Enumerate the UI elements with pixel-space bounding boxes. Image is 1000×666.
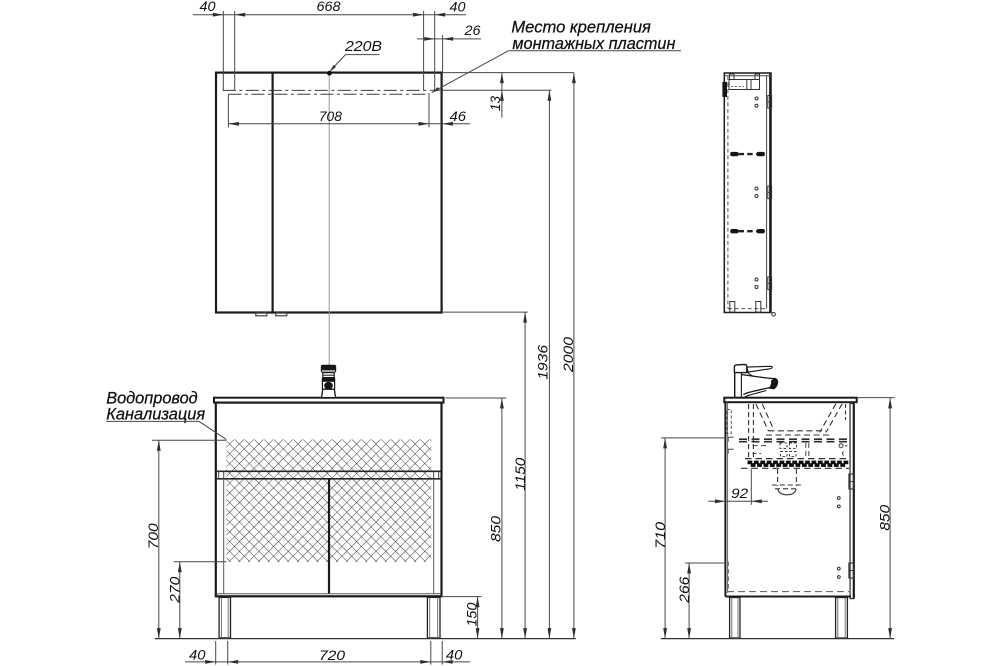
svg-text:266: 266 bbox=[676, 576, 692, 603]
svg-text:708: 708 bbox=[319, 108, 342, 124]
svg-text:710: 710 bbox=[652, 522, 668, 549]
svg-text:668: 668 bbox=[317, 0, 341, 14]
svg-text:13: 13 bbox=[487, 96, 503, 111]
svg-text:26: 26 bbox=[463, 22, 480, 38]
svg-text:1150: 1150 bbox=[512, 457, 528, 490]
svg-text:850: 850 bbox=[487, 516, 503, 542]
svg-text:40: 40 bbox=[446, 647, 463, 663]
svg-text:40: 40 bbox=[189, 646, 206, 662]
svg-text:850: 850 bbox=[876, 505, 892, 531]
svg-text:2000: 2000 bbox=[560, 337, 576, 373]
svg-text:270: 270 bbox=[167, 576, 183, 603]
svg-text:40: 40 bbox=[450, 0, 466, 14]
svg-text:150: 150 bbox=[463, 602, 479, 626]
svg-text:40: 40 bbox=[200, 0, 216, 14]
svg-text:92: 92 bbox=[731, 485, 748, 501]
svg-text:720: 720 bbox=[319, 647, 345, 663]
svg-text:700: 700 bbox=[145, 523, 161, 549]
svg-text:46: 46 bbox=[450, 108, 467, 124]
svg-text:1936: 1936 bbox=[534, 345, 550, 380]
svg-text:Канализация: Канализация bbox=[106, 404, 205, 423]
svg-text:монтажных пластин: монтажных пластин bbox=[512, 34, 676, 53]
svg-text:220В: 220В bbox=[344, 38, 382, 55]
